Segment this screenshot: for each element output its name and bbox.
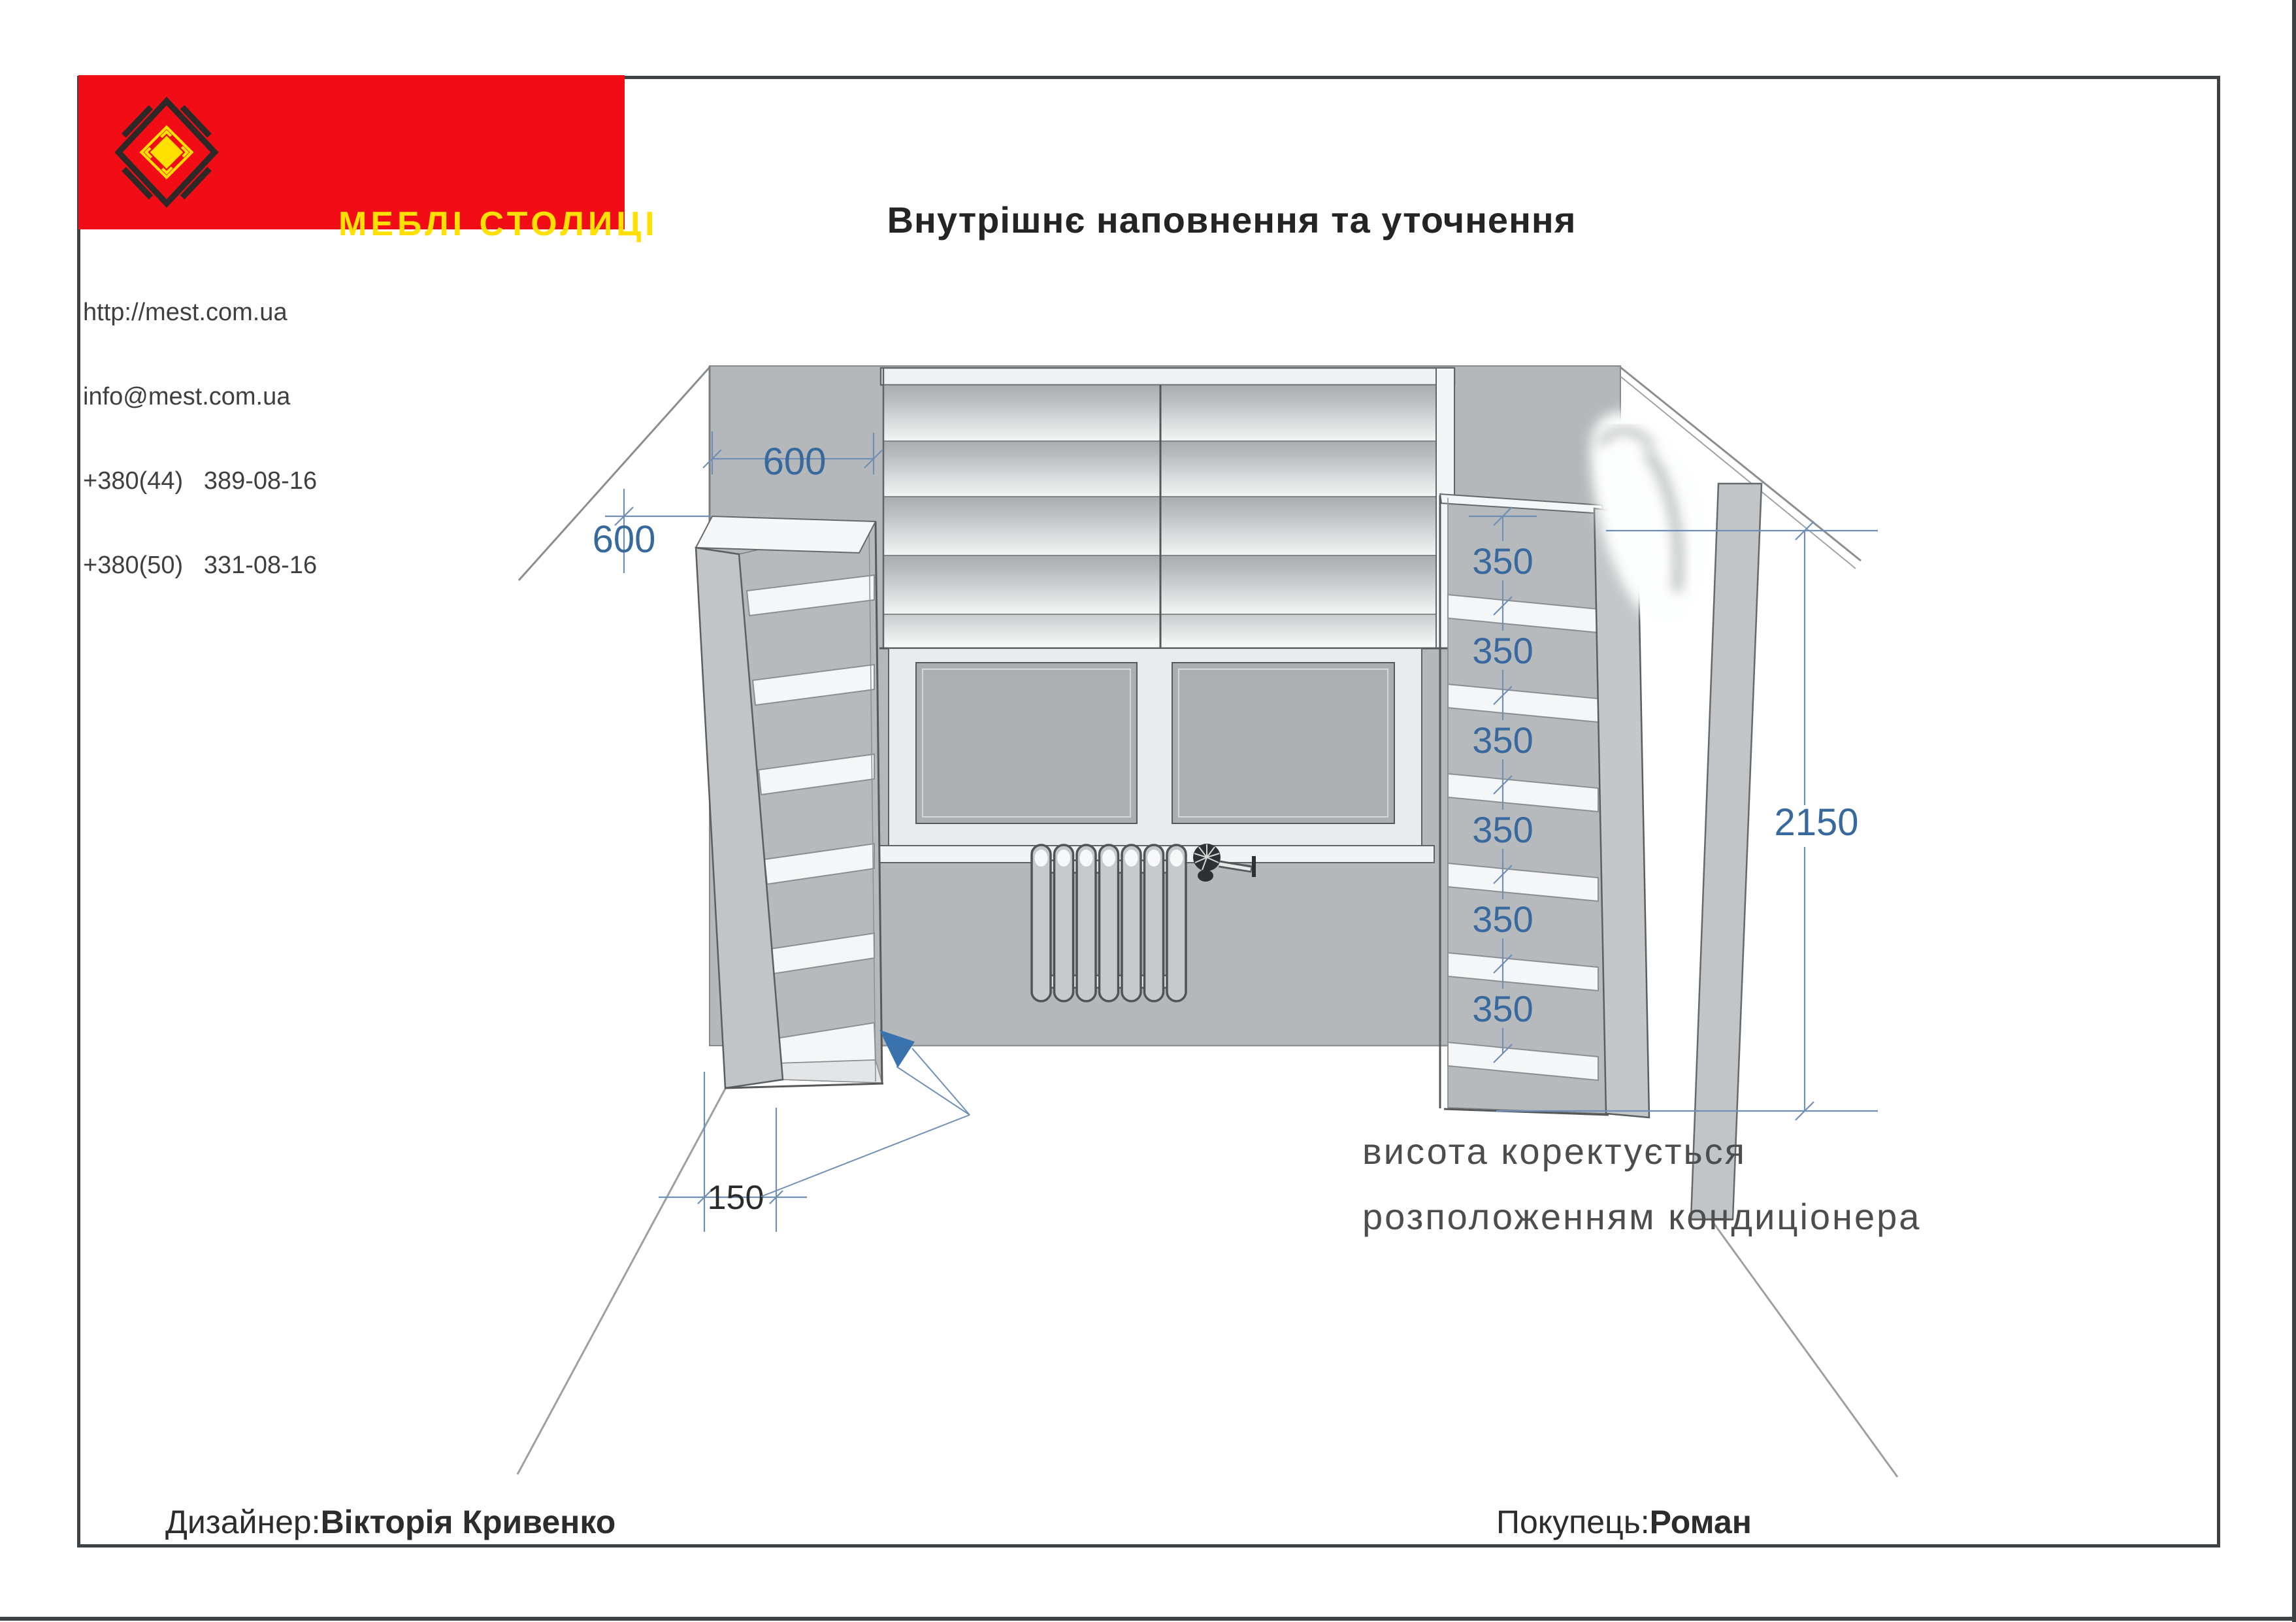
brand-logo-plate: МЕБЛІ СТОЛИЦІ bbox=[78, 75, 625, 229]
drawing-note: висота коректується розположенням кондиц… bbox=[1362, 1119, 1921, 1250]
window-pane-left bbox=[916, 663, 1137, 823]
floor-line-left bbox=[517, 1089, 725, 1474]
brand-diamond-icon bbox=[98, 83, 235, 222]
upper-cabinet bbox=[879, 368, 1456, 684]
dim-label-shelf-gap: 350 bbox=[1472, 540, 1533, 582]
dim-label-shelf-gap: 350 bbox=[1472, 988, 1533, 1029]
dim-label-total-height: 2150 bbox=[1774, 801, 1858, 844]
dim-label-shelf-gap: 350 bbox=[1472, 899, 1533, 940]
window-pane-right bbox=[1172, 663, 1394, 823]
dim-label-shelf-gap: 350 bbox=[1472, 720, 1533, 761]
designer-label: Дизайнер: bbox=[165, 1504, 321, 1540]
wall-pillar bbox=[1691, 484, 1762, 1219]
designer-name: Вікторія Кривенко bbox=[321, 1504, 616, 1540]
right-shelf-unit bbox=[1440, 494, 1649, 1117]
customer-credit: Покупець:Роман bbox=[1496, 1503, 1752, 1541]
customer-name: Роман bbox=[1650, 1504, 1752, 1540]
dim-label-niche-height: 600 bbox=[593, 518, 656, 561]
left-unit-top bbox=[696, 516, 876, 553]
radiator-tubes bbox=[1032, 845, 1186, 1001]
dim-label-plinth: 150 bbox=[708, 1179, 764, 1217]
dim-label-shelf-gap: 350 bbox=[1472, 809, 1533, 850]
drawing-note-line1: висота коректується bbox=[1362, 1119, 1921, 1184]
designer-credit: Дизайнер:Вікторія Кривенко bbox=[165, 1503, 615, 1541]
window bbox=[874, 648, 1434, 863]
dim-label-shelf-gap: 350 bbox=[1472, 630, 1533, 671]
drawing-note-line2: розположенням кондиціонера bbox=[1362, 1184, 1921, 1250]
brand-logo-text: МЕБЛІ СТОЛИЦІ bbox=[338, 205, 659, 244]
dim-label-niche-width: 600 bbox=[763, 440, 827, 483]
floor-line-right bbox=[1712, 1221, 1897, 1477]
customer-label: Покупець: bbox=[1496, 1504, 1650, 1540]
left-shelf-unit bbox=[696, 516, 883, 1088]
